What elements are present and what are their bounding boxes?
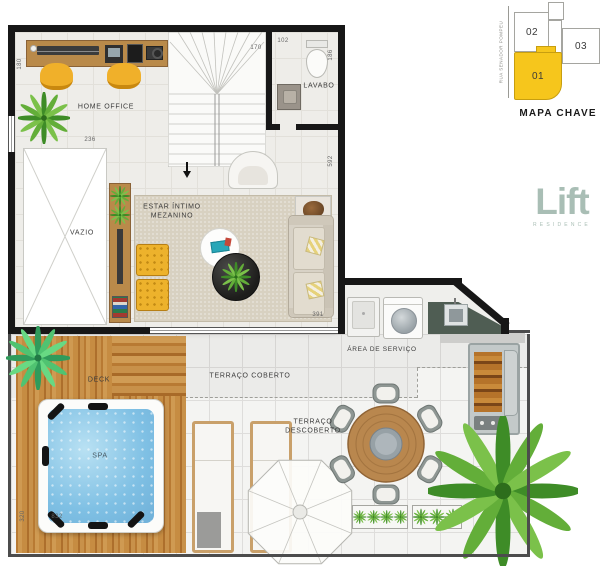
potted-plant [18, 92, 70, 144]
potted-plant [110, 186, 130, 206]
washer-panel-line [384, 304, 422, 305]
planter-box [352, 505, 408, 529]
mug [30, 45, 37, 52]
dim-stairs-top: 170 [250, 45, 261, 51]
sofa-armrest [289, 216, 333, 225]
dim-lavabo-top: 102 [277, 38, 288, 44]
potted-plant [110, 205, 130, 225]
pouf-ottoman [136, 279, 169, 311]
spa-headrest [88, 403, 108, 410]
glass-door-bottom [150, 327, 338, 334]
label-terraco-descoberto-line1: TERRAÇO [293, 417, 332, 426]
lavabo-wall-horizontal-b [296, 124, 345, 130]
unit-02-label: 02 [526, 27, 538, 38]
keymap-unit-03: 03 [562, 28, 600, 64]
throw-pillow [306, 281, 325, 300]
printer [127, 44, 143, 63]
sideboard-books [112, 296, 128, 318]
deck-palm-plant [6, 326, 70, 390]
stair-direction-stem [186, 162, 188, 171]
dim-vazio-top: 236 [84, 137, 95, 143]
void-opening [23, 148, 107, 325]
street-line [508, 6, 509, 98]
shrub [413, 508, 429, 526]
label-deck: DECK [88, 375, 110, 384]
keyboard [37, 46, 99, 55]
service-wall-top [345, 278, 462, 285]
grill-skewers [474, 352, 502, 412]
shrub [367, 508, 381, 526]
dim-home-office-left: 180 [17, 58, 23, 69]
office-chair [40, 63, 73, 90]
dim-lavabo-right: 186 [328, 49, 334, 60]
bathroom-vanity [277, 84, 301, 110]
laundry-sink [347, 297, 380, 337]
lavabo-wall-horizontal-a [266, 124, 280, 130]
office-desk [26, 40, 168, 67]
stair-direction-arrow-icon [183, 171, 191, 178]
dim-estar-bottom: 391 [312, 312, 323, 318]
key-map: RUA SENADOR POMPEU 02 03 01 MAPA CHAVE [492, 2, 604, 124]
table-plant [221, 262, 251, 292]
window-left [8, 116, 15, 152]
staircase [168, 32, 266, 167]
desk-lamp [152, 48, 163, 59]
lounger-fold-line [195, 460, 231, 461]
label-lavabo: LAVABO [303, 81, 334, 90]
spa-headrest [42, 446, 49, 466]
unit-01-label: 01 [532, 71, 544, 82]
laundry-sink-basin [352, 301, 375, 329]
laptop [105, 45, 123, 63]
deck-steps [112, 336, 186, 396]
spa-headrest [88, 522, 108, 529]
lavabo-wall-vertical [266, 32, 272, 130]
washer-drum [391, 308, 417, 334]
shrub [353, 508, 367, 526]
wall-top [8, 25, 345, 32]
laptop-screen [108, 48, 120, 57]
label-estar-line2: MEZANINO [151, 211, 194, 220]
toilet-tank [306, 40, 328, 48]
brand-logo: Lift RESIDENCE [520, 184, 604, 242]
wall-left-lower [8, 152, 15, 334]
label-home-office: HOME OFFICE [78, 102, 134, 111]
service-wall-stub [501, 318, 509, 334]
dim-estar-right: 592 [328, 155, 334, 166]
palm-tree [428, 416, 578, 566]
shrub [394, 508, 408, 526]
armchair-seat [238, 166, 268, 185]
sink-basin [449, 309, 463, 322]
grill-lid-open [504, 350, 518, 416]
wall-right [338, 32, 345, 334]
label-terraco-descoberto-line2: DESCOBERTO [285, 426, 341, 435]
keymap-unit-01: 01 [514, 52, 562, 100]
brand-name: Lift [520, 184, 604, 219]
laundry-drain [362, 312, 365, 315]
washing-machine [383, 297, 423, 339]
label-terraco-coberto: TERRAÇO COBERTO [209, 371, 290, 380]
label-spa: SPA [92, 451, 108, 460]
brand-subtitle: RESIDENCE [520, 222, 604, 228]
floor-plan-canvas: HOME OFFICE LAVABO ESTAR ÍNTIMO MEZANINO… [0, 0, 608, 571]
spa-bubbles [48, 409, 154, 523]
dim-deck-bottom: 832 [51, 514, 62, 520]
shrub [380, 508, 394, 526]
spa-water [48, 409, 154, 523]
unit-03-label: 03 [575, 41, 587, 52]
faucet [454, 298, 456, 304]
dim-deck-left: 320 [20, 510, 26, 521]
label-vazio: VAZIO [70, 228, 94, 237]
lounger-shadow-pad [197, 512, 221, 548]
parapet-right [527, 334, 530, 557]
service-counter-sink [444, 304, 468, 326]
label-area-servico: ÁREA DE SERVIÇO [347, 346, 417, 354]
street-name: RUA SENADOR POMPEU [499, 21, 504, 84]
sun-lounger [192, 421, 234, 553]
office-chair [107, 63, 141, 89]
parapet-bottom [8, 554, 530, 557]
table-book-red [224, 238, 231, 247]
keymap-step [548, 2, 564, 20]
keymap-title: MAPA CHAVE [512, 108, 604, 119]
label-estar-line1: ESTAR ÍNTIMO [143, 202, 201, 211]
wall-left-upper [8, 25, 15, 116]
pouf-ottoman [136, 244, 169, 276]
sideboard-tray [117, 229, 123, 284]
sofa [288, 215, 334, 318]
vanity-sink [283, 90, 297, 104]
